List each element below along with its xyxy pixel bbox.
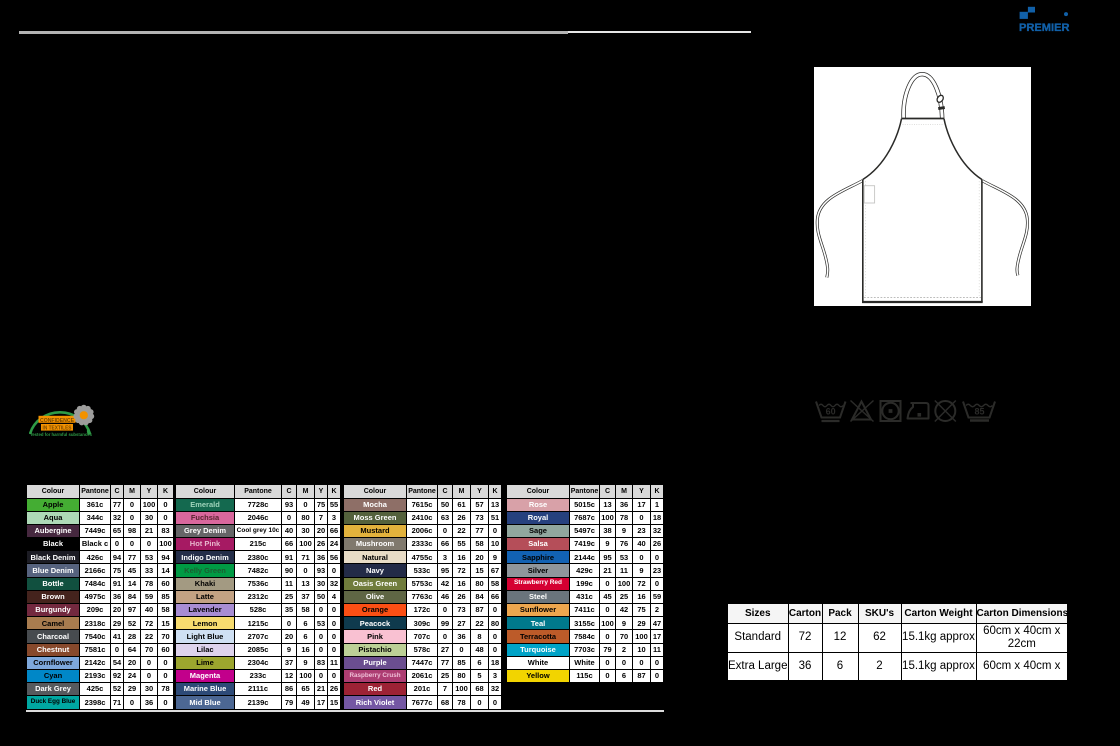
svg-text:PREMIER: PREMIER <box>1019 22 1070 33</box>
svg-text:60: 60 <box>826 407 836 417</box>
svg-text:CONFIDENCE: CONFIDENCE <box>40 418 74 424</box>
svg-text:IN TEXTILES: IN TEXTILES <box>43 426 72 432</box>
svg-text:Tested for harmful substances: Tested for harmful substances <box>30 432 93 437</box>
svg-text:85: 85 <box>974 407 984 417</box>
